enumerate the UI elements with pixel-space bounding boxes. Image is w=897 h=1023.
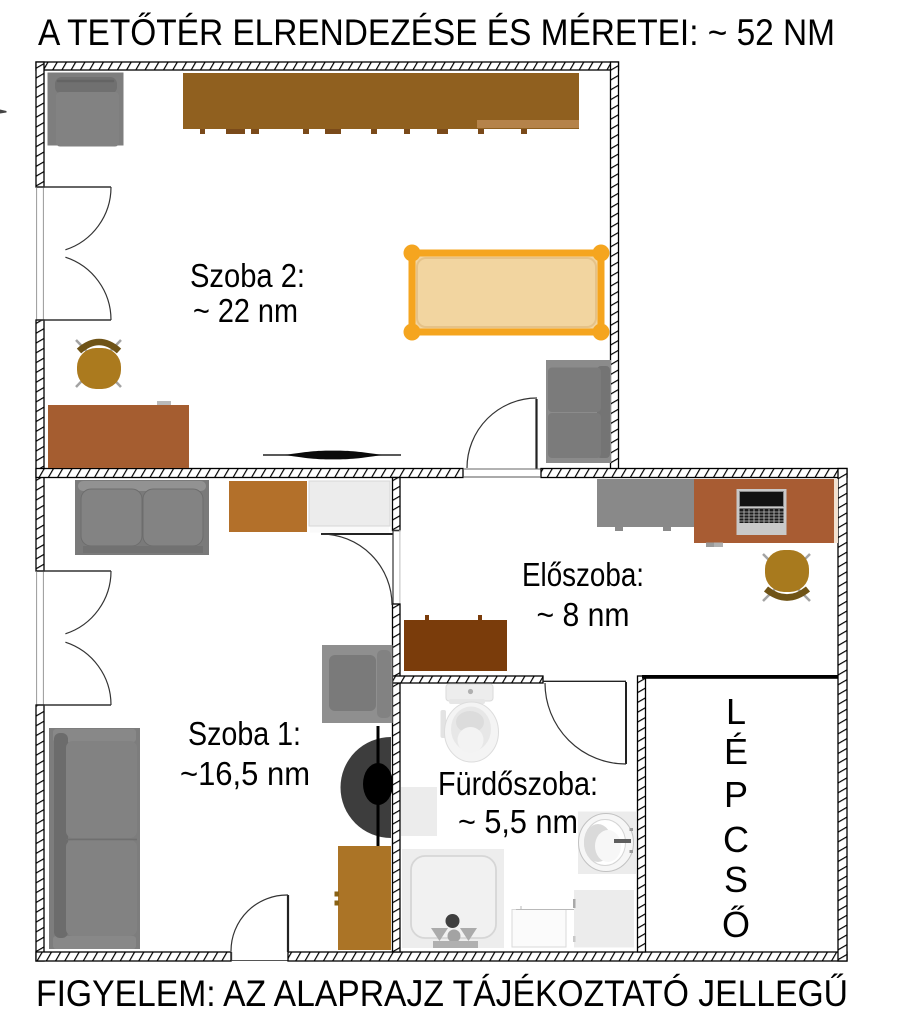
svg-text:Előszoba:: Előszoba: <box>522 556 644 593</box>
svg-text:~ 22 nm: ~ 22 nm <box>193 292 298 329</box>
svg-text:L: L <box>726 691 746 732</box>
svg-text:P: P <box>724 774 748 815</box>
svg-text:S: S <box>724 859 748 900</box>
svg-text:~16,5 nm: ~16,5 nm <box>180 755 310 792</box>
svg-text:FIGYELEM: AZ ALAPRAJZ TÁJÉKOZT: FIGYELEM: AZ ALAPRAJZ TÁJÉKOZTATÓ JELLEG… <box>36 973 848 1014</box>
svg-text:Szoba 1:: Szoba 1: <box>188 715 301 752</box>
svg-text:Ő: Ő <box>722 904 750 945</box>
svg-text:Szoba 2:: Szoba 2: <box>190 257 305 294</box>
svg-text:A TETŐTÉR ELRENDEZÉSE ÉS MÉRET: A TETŐTÉR ELRENDEZÉSE ÉS MÉRETEI: ~ 52 N… <box>38 12 835 53</box>
svg-text:Fürdőszoba:: Fürdőszoba: <box>438 765 598 802</box>
svg-text:~ 8 nm: ~ 8 nm <box>537 596 630 633</box>
svg-text:C: C <box>723 819 749 860</box>
svg-text:É: É <box>724 731 748 772</box>
svg-text:~ 5,5 nm: ~ 5,5 nm <box>458 803 578 840</box>
